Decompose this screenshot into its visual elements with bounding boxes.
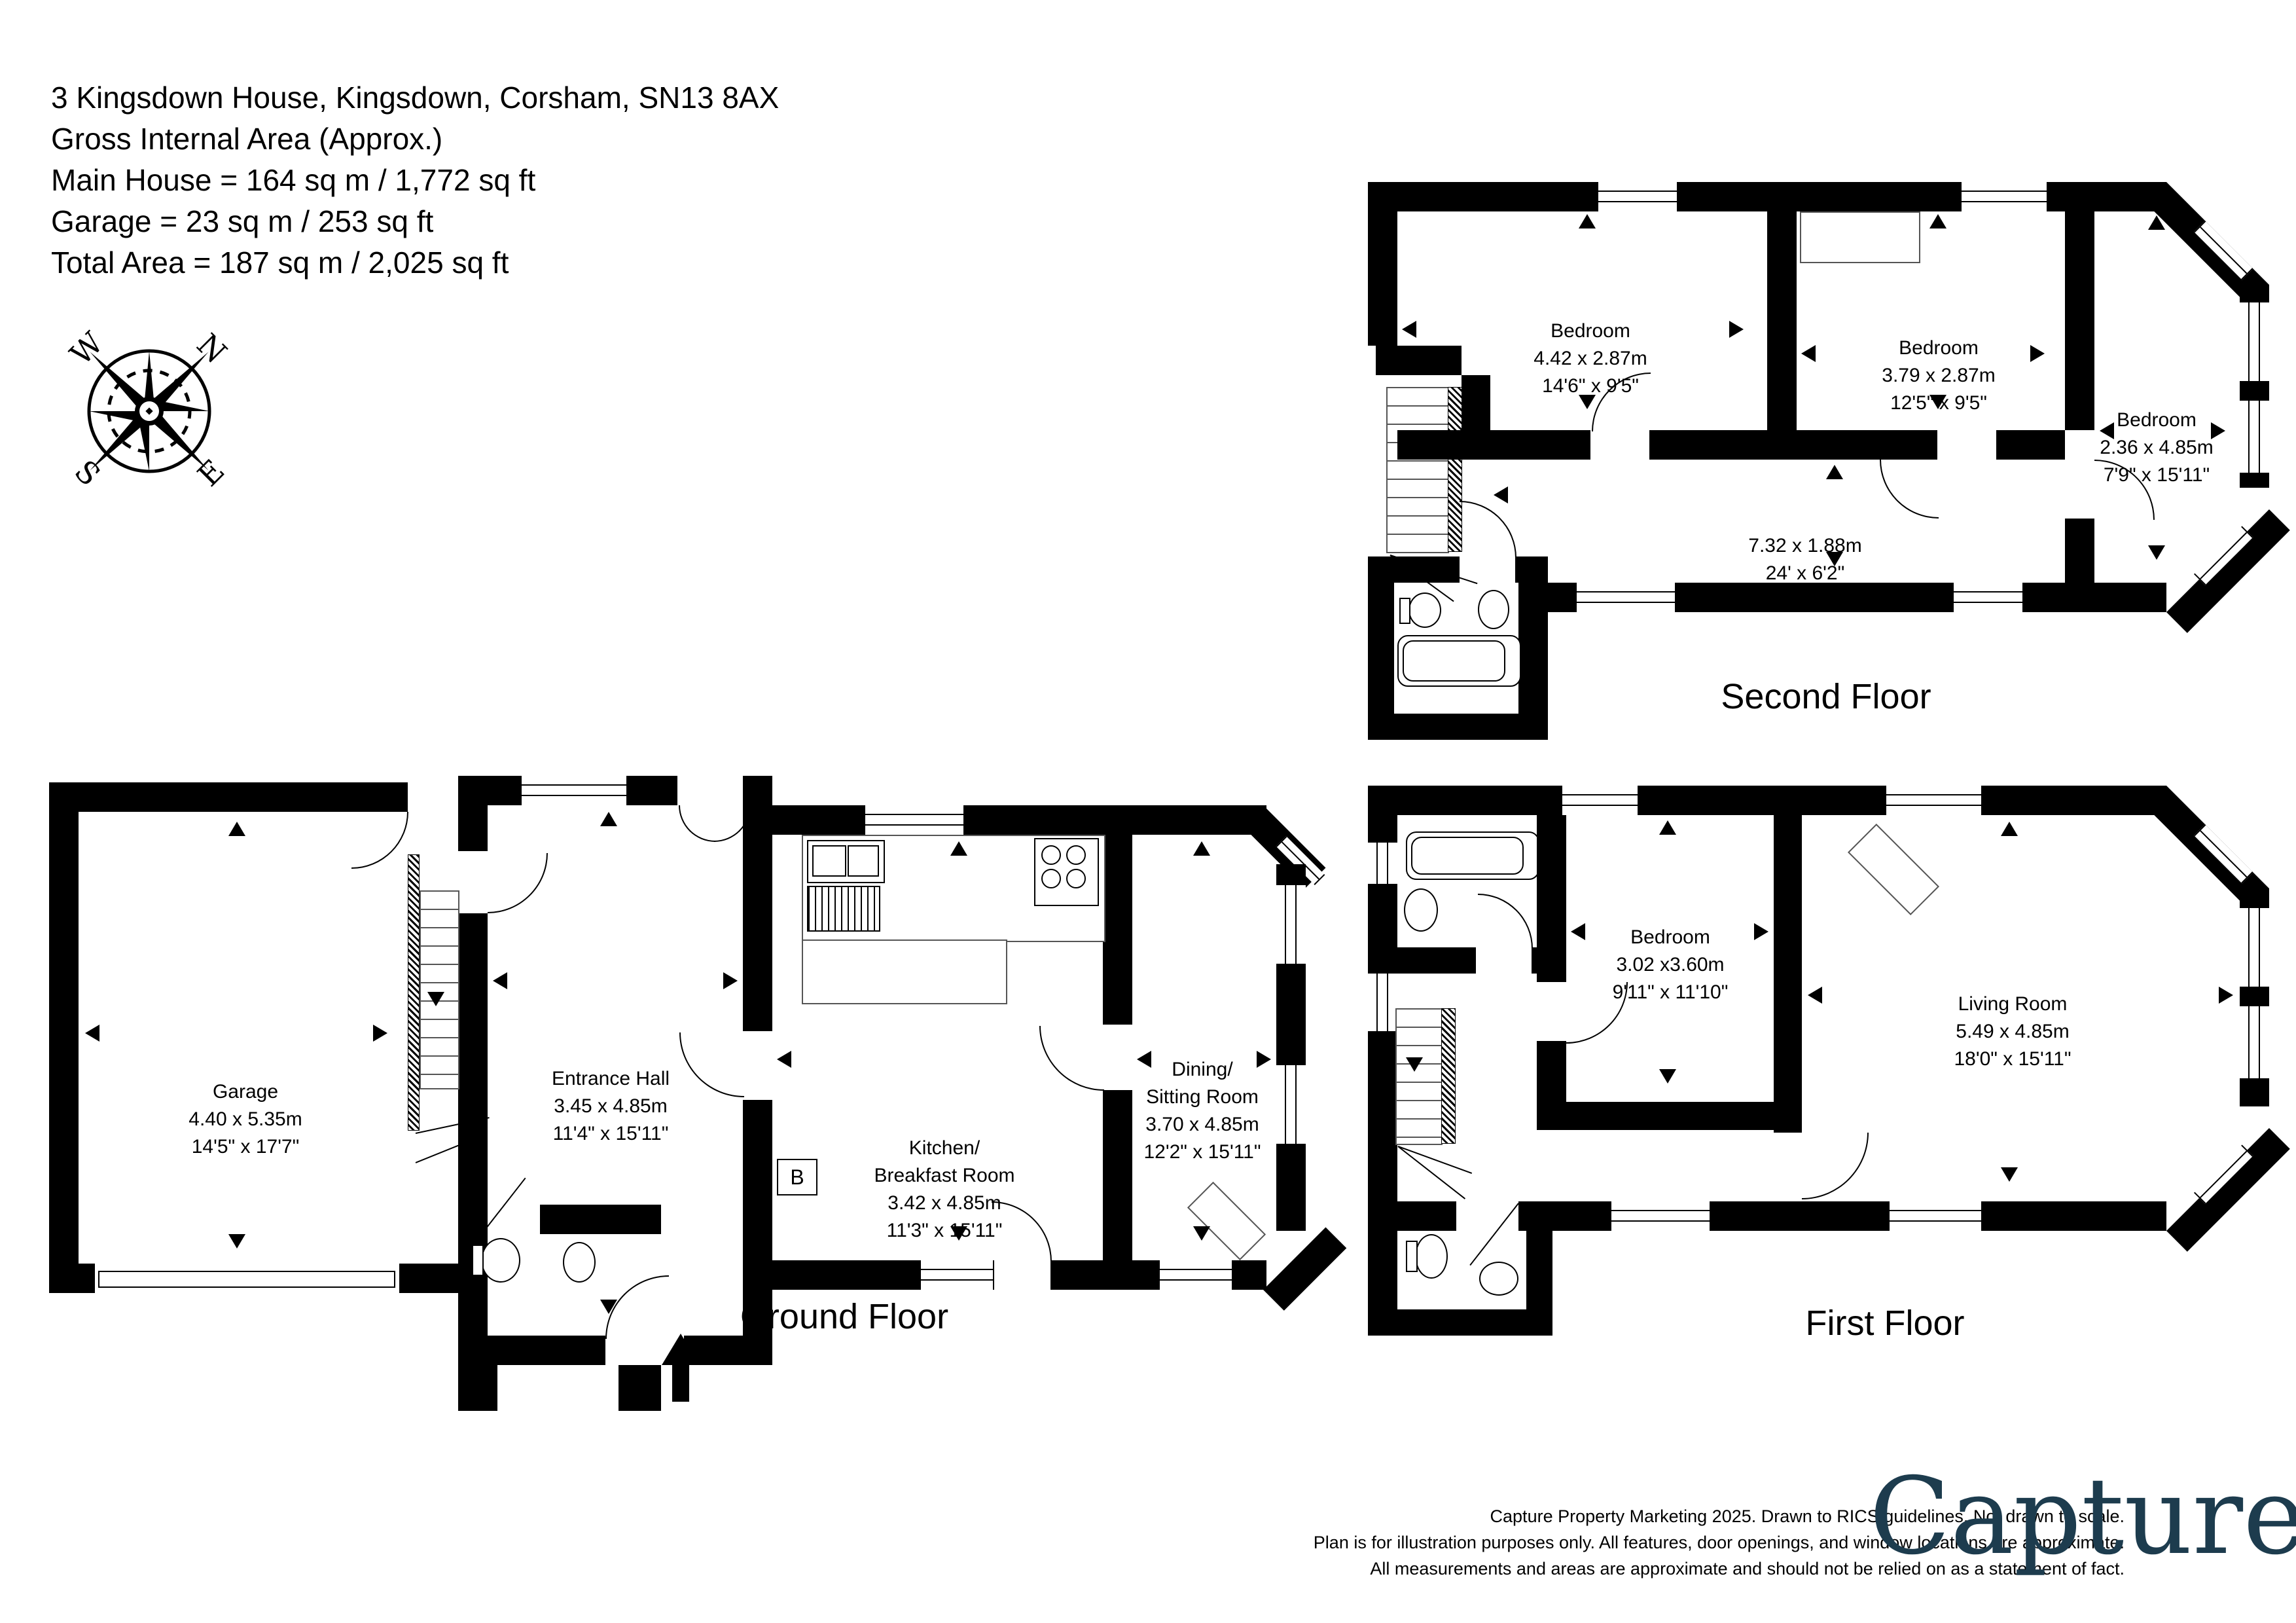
dim-arrow [600,812,617,826]
wall [2240,380,2269,399]
dim-arrow [1193,841,1210,856]
door-arc [679,1032,744,1097]
dim-arrow [1808,987,1822,1004]
header-block: 3 Kingsdown House, Kingsdown, Corsham, S… [51,77,779,283]
toilet-icon [1408,593,1441,628]
wall [1676,182,1960,211]
wall [2240,888,2269,907]
wall [1649,430,1937,460]
wall [1515,556,1548,583]
room-label-living-room: Living Room 5.49 x 4.85m 18'0" x 15'11" [1954,991,2072,1073]
dim-arrow [1929,214,1946,228]
stair-banister [1441,1008,1456,1144]
wall [49,782,79,1293]
window [920,1260,994,1290]
burner [1041,869,1061,888]
dim-arrow [1826,465,1843,479]
kitchen-counter [802,939,1007,1004]
dim-arrow [723,972,738,989]
wall [1376,346,1462,375]
door-arc [488,853,548,913]
door-arc [1802,1133,1869,1199]
stair-line [1397,1146,1465,1199]
window [1888,1201,1982,1231]
draining-board [807,886,880,932]
wall [540,1205,661,1234]
wall [2240,1077,2269,1106]
wall [1368,1309,1552,1336]
compass-rose-icon: N E S W [58,319,241,503]
wall [2065,519,2094,583]
window [1597,182,1678,211]
wall [1537,815,1566,982]
wall [1368,182,1397,346]
wall [1397,430,1590,460]
second-floor-plan: Bedroom 4.42 x 2.87m 14'6" x 9'5" Bedroo… [1368,173,2296,776]
dim-arrow [2030,345,2045,362]
garage-area-line: Garage = 23 sq m / 253 sq ft [51,201,779,242]
dim-arrow [777,1051,791,1068]
room-label-dining: Dining/ Sitting Room 3.70 x 4.85m 12'2" … [1144,1056,1261,1166]
wall [458,776,520,805]
dim-arrow [2219,987,2233,1004]
wall [1368,714,1548,740]
wall [1368,556,1394,740]
porch-wall [458,1365,497,1411]
wall [1980,1201,2166,1231]
burner [1041,845,1061,865]
floorplan-page: 3 Kingsdown House, Kingsdown, Corsham, S… [0,0,2296,1623]
recess [1800,211,1920,263]
wall [772,1260,920,1290]
gia-line: Gross Internal Area (Approx.) [51,119,779,160]
toilet-cistern [1399,598,1410,624]
wall [962,805,1132,835]
wall [625,776,677,805]
wall [1230,1260,1266,1290]
wall [1132,1260,1158,1290]
floor-label-first: First Floor [1806,1303,1965,1343]
bath-inner [1403,640,1505,682]
window [2240,907,2269,988]
wall [1276,1142,1306,1231]
dim-arrow [950,841,967,856]
staircase [1395,1008,1443,1145]
window [520,776,628,805]
entrance-arrow-stem [672,1364,689,1402]
sink-icon [1478,590,1509,629]
room-label-entrance-hall: Entrance Hall 3.45 x 4.85m 11'4" x 15'11… [552,1065,670,1148]
staircase [420,890,459,1089]
capture-logo: Capture. [1869,1464,2296,1570]
wall [1636,786,1885,815]
door-arc [1478,894,1533,949]
wall-chamfer [2166,509,2290,633]
room-label-bedroom2: Bedroom 3.79 x 2.87m 12'5" x 9'5" [1882,335,1995,417]
window [2240,1005,2269,1080]
window [1885,786,1982,815]
wall [49,782,408,812]
wall [1276,962,1306,1064]
logo-text: Capture [1869,1455,2296,1578]
window [1610,1201,1711,1231]
dim-arrow [1579,214,1596,228]
wall [399,1264,458,1293]
wall [1980,786,2166,815]
wall [1462,375,1490,433]
door-arc [1880,460,1939,519]
sink-icon [1404,888,1438,932]
dim-arrow [228,822,245,836]
first-floor-plan: Bedroom 3.02 x3.60m 9'11" x 11'10" Livin… [1368,776,2296,1391]
dim-arrow [1754,923,1768,940]
boiler-badge: B [777,1159,817,1195]
wall [2240,985,2269,1005]
address-line: 3 Kingsdown House, Kingsdown, Corsham, S… [51,77,779,119]
burner [1066,845,1086,865]
door-arc [1039,1026,1104,1091]
wall [458,1336,605,1365]
toilet-icon [1415,1234,1448,1279]
fireplace [1187,1182,1266,1260]
window [1276,884,1306,965]
staircase [1386,387,1449,553]
wall [49,1264,95,1293]
stair-arrow [1406,1057,1423,1072]
dim-arrow [2148,545,2165,560]
window [864,805,965,835]
window [1158,1260,1233,1290]
dim-arrow [1659,1069,1676,1084]
floor-label-second: Second Floor [1721,676,1931,717]
room-label-landing: 7.32 x 1.88m 24' x 6'2" [1748,532,1861,587]
window [1952,583,2024,612]
dim-arrow [2148,215,2165,230]
porch-wall [619,1365,661,1411]
dim-arrow [2001,822,2018,836]
bath-inner [1411,837,1524,875]
wall [1276,864,1306,884]
wall-chamfer [2166,1128,2290,1252]
wardrobe [1848,824,1939,915]
dim-arrow [228,1234,245,1249]
room-label-kitchen: Kitchen/ Breakfast Room 3.42 x 4.85m 11'… [874,1135,1014,1245]
wall [1996,430,2065,460]
room-label-garage: Garage 4.40 x 5.35m 14'5" x 17'7" [188,1078,302,1161]
wall [1767,211,1797,430]
wall [2045,182,2166,211]
wall [2021,583,2166,612]
window [1276,1064,1306,1145]
wall [1397,1201,1456,1231]
wall [743,776,772,1031]
window [2240,301,2269,382]
dim-arrow [373,1025,387,1042]
garage-door [98,1271,395,1288]
room-label-bedroom: Bedroom 3.02 x3.60m 9'11" x 11'10" [1613,924,1729,1006]
main-house-line: Main House = 164 sq m / 1,772 sq ft [51,160,779,201]
wall [1368,947,1476,974]
wall [2240,285,2269,301]
wall [2065,211,2094,430]
wall [772,805,864,835]
entrance-arrow-head [662,1334,700,1365]
toilet-icon [481,1238,520,1283]
wall [1708,1201,1888,1231]
dim-arrow [1193,1226,1210,1241]
door-arc [1460,501,1516,558]
window [2240,399,2269,474]
dim-arrow [600,1300,617,1314]
sink-icon [1479,1262,1518,1296]
room-label-bedroom3: Bedroom 2.36 x 4.85m 7'9" x 15'11" [2100,407,2213,489]
sink-bowl [848,845,879,877]
window [1575,583,1676,612]
dim-arrow [1571,923,1585,940]
toilet-cistern [472,1245,484,1276]
dim-arrow [85,1025,99,1042]
stair-banister [408,854,420,1131]
sink-bowl [812,845,846,877]
dim-arrow [2001,1167,2018,1182]
door-arc [679,805,715,842]
boiler-label: B [790,1165,804,1190]
wall [1050,1260,1132,1290]
door-arc [351,812,408,869]
sink-icon [563,1242,596,1283]
dim-arrow [1402,321,1416,338]
dim-arrow [1659,820,1676,835]
wall [1368,182,1597,211]
window [1561,786,1639,815]
dim-arrow [1494,486,1508,503]
door-leaf [1469,1203,1518,1266]
toilet-cistern [1406,1241,1418,1272]
window [1960,182,2048,211]
stair-line [1398,1146,1472,1174]
wall [1774,815,1802,1133]
room-label-bedroom1: Bedroom 4.42 x 2.87m 14'6" x 9'5" [1534,318,1647,400]
wall [1103,835,1132,1025]
dim-arrow [493,972,507,989]
floor-label-ground: Ground Floor [740,1296,948,1337]
wall [461,1205,478,1234]
burner [1066,869,1086,888]
wall [1537,1102,1802,1130]
dim-arrow [1729,321,1744,338]
stair-arrow [427,992,444,1006]
dim-arrow [1801,345,1816,362]
total-area-line: Total Area = 187 sq m / 2,025 sq ft [51,242,779,283]
wall-chamfer [1263,1228,1346,1311]
window [1368,841,1397,885]
ground-floor-plan: B Garage 4.40 x 5.35m [49,776,1332,1437]
